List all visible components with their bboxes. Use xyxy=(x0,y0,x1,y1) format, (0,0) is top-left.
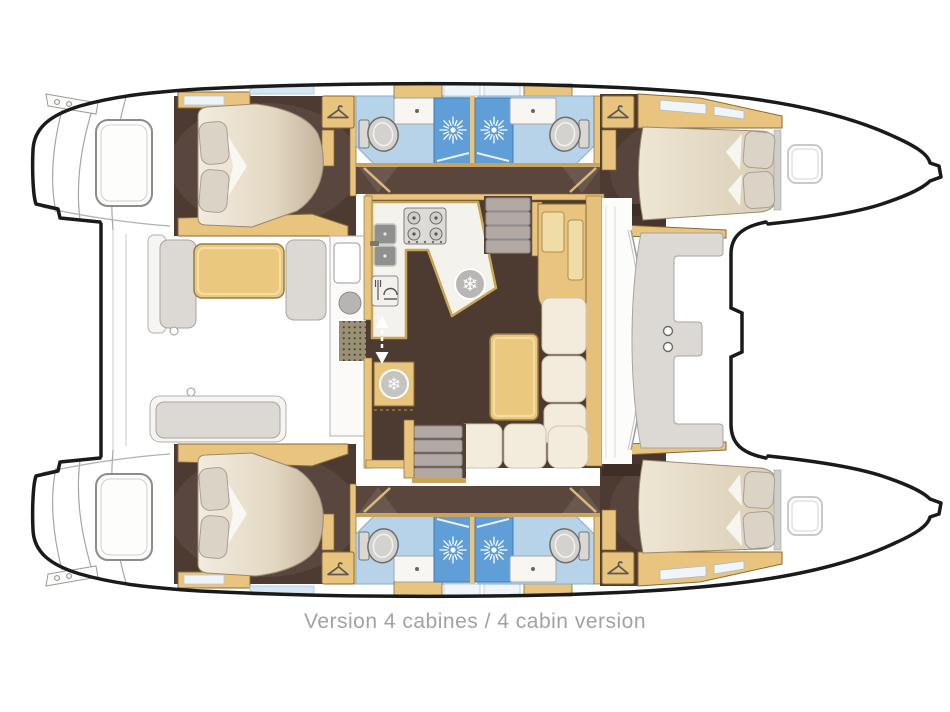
salon-aft-wall-lower xyxy=(364,358,372,468)
table-leg xyxy=(170,327,178,335)
cockpit-table xyxy=(194,244,284,298)
dot-mat xyxy=(338,320,368,362)
stove-burners-icon xyxy=(404,208,446,244)
aft-cockpit xyxy=(101,224,372,456)
oven-icon xyxy=(372,276,398,306)
floorplan-svg: ❄ ❄ xyxy=(0,0,950,712)
stairs-port-hull xyxy=(484,196,542,256)
caption: Version 4 cabines / 4 cabin version xyxy=(304,610,646,633)
snowflake-fridge-icon: ❄ xyxy=(455,269,485,299)
forward-cockpit xyxy=(602,198,766,464)
cockpit-grill xyxy=(339,292,361,314)
forward-deck-edge xyxy=(731,222,766,458)
salon-table xyxy=(490,334,538,420)
forward-cockpit-bench xyxy=(632,233,723,448)
deck-filler-cap xyxy=(664,327,673,336)
chart-table xyxy=(568,220,583,280)
nav-station xyxy=(538,204,586,310)
svg-text:❄: ❄ xyxy=(462,274,479,296)
sideboard-sink xyxy=(334,243,360,283)
nav-seat xyxy=(542,212,564,252)
sofa-cushion xyxy=(542,298,586,354)
salon-fwd-bulkhead xyxy=(586,196,602,466)
salon: ❄ ❄ xyxy=(364,194,604,483)
boat-floorplan-image: ❄ ❄ xyxy=(0,0,950,712)
freezer-cabinet: ❄ xyxy=(374,362,414,410)
sofa-cushion xyxy=(504,424,546,468)
platform-lines xyxy=(113,230,126,450)
svg-text:❄: ❄ xyxy=(387,375,401,394)
cockpit-bench-left xyxy=(160,240,196,328)
cockpit-bench-right xyxy=(286,240,326,320)
sofa-cushion xyxy=(548,426,588,468)
sofa-cushion xyxy=(542,356,586,402)
deck-filler-cap xyxy=(664,343,673,352)
cockpit-bench-aft xyxy=(156,402,280,438)
table-leg xyxy=(187,388,195,396)
stairs-starboard-hull xyxy=(404,420,466,483)
